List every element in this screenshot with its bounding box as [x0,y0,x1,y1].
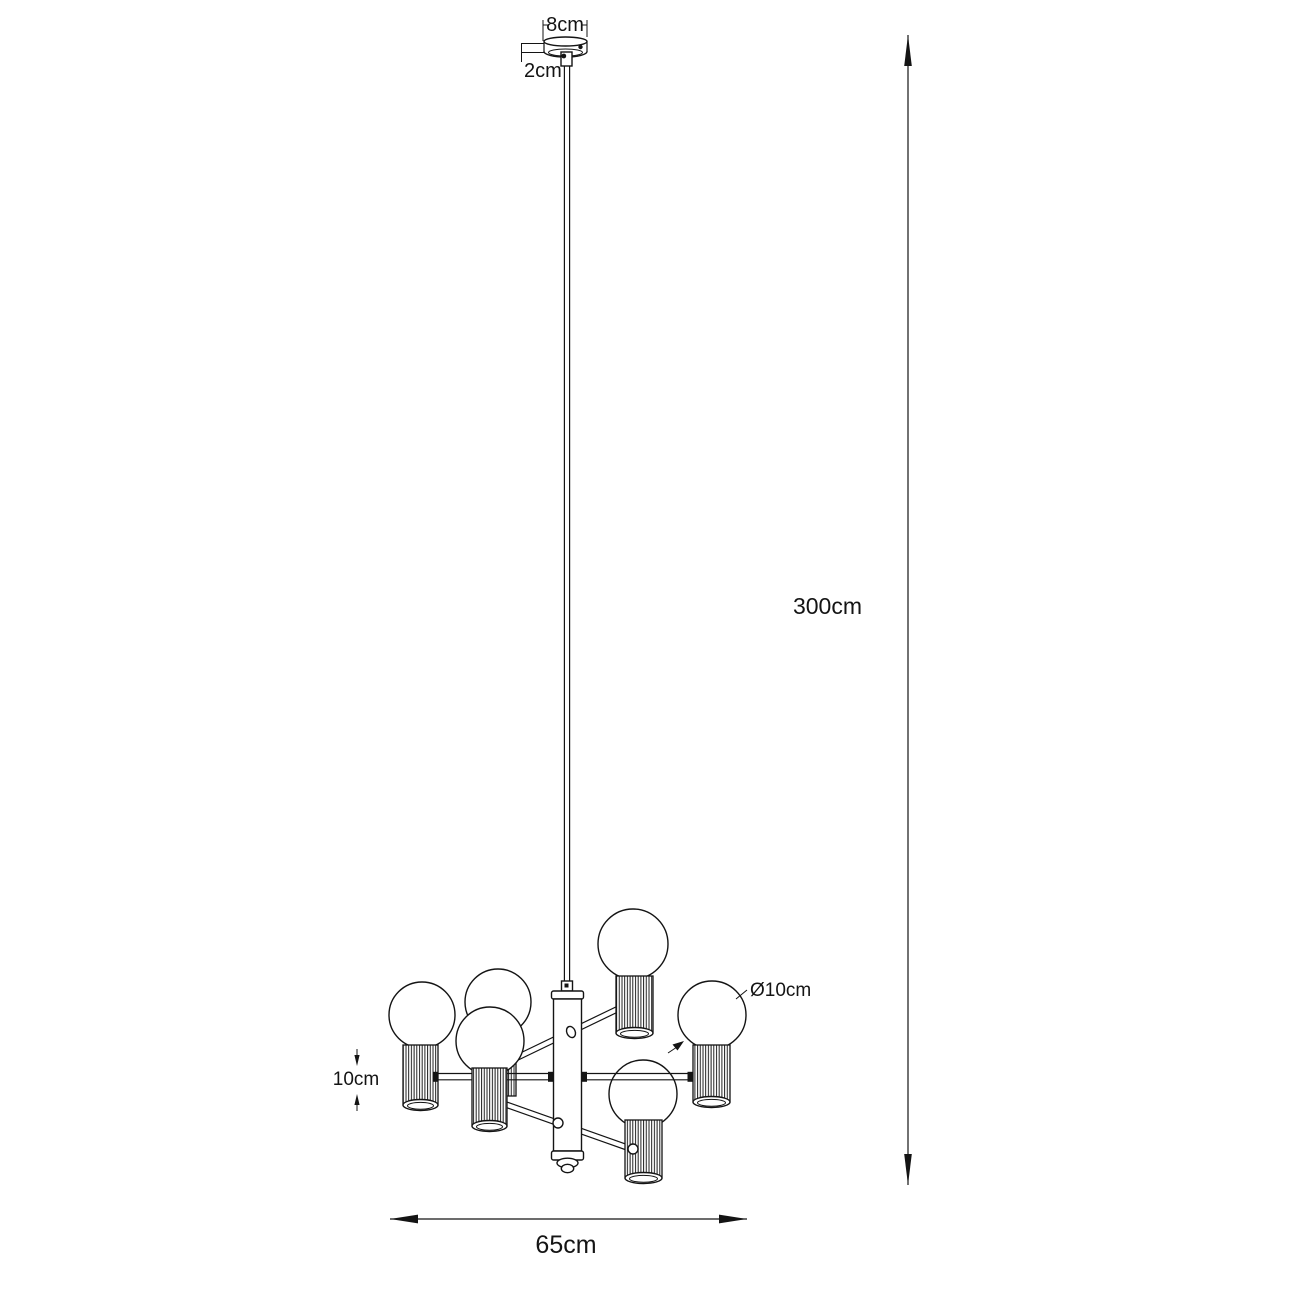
canopy-height-label: 2cm [524,60,562,82]
suspension-height-label: 300cm [793,593,862,619]
bulb-diameter-label: Ø10cm [750,980,811,1001]
arm-end-cap [628,1144,638,1154]
dim-shade-height: 10cm [333,1049,379,1111]
shade-body [693,1045,730,1102]
shade-body [472,1068,507,1126]
body-top-cap [552,991,584,999]
arrow-up-icon [904,35,912,66]
canopy-screw-icon [578,45,582,49]
shade-height-label: 10cm [333,1069,379,1090]
canopy-top [544,37,587,46]
bulb-globe-front-left [456,1007,524,1075]
shade-far-right [688,1045,731,1108]
arrow-right-icon [719,1215,747,1224]
shade-bottom-center [625,1120,662,1184]
arm-socket [688,1072,694,1082]
arrow-down-icon [904,1154,912,1185]
bulb-globe-top-right [598,909,668,979]
bulb-globe-bottom-center [609,1060,677,1128]
arm-socket [548,1072,554,1082]
suspension-rod [564,66,569,982]
lamp-dimension-diagram: 8cm 2cm [0,0,1300,1300]
bulb-globe-far-right [678,981,746,1049]
diagram-canvas: 8cm 2cm [0,0,1300,1300]
arm-socket [433,1072,439,1082]
bulb-globe-far-left [389,982,455,1048]
finial-knob [561,1164,573,1172]
shade-body [616,976,653,1033]
connector-pin [565,984,569,988]
arrow-down-icon [354,1055,359,1066]
shade-body [403,1045,438,1105]
arrow-left-icon [390,1215,418,1224]
fixture-width-label: 65cm [535,1231,596,1259]
grip-screw-icon [561,54,566,59]
lower-arm-joint [553,1118,563,1128]
lamp-body [548,981,587,1173]
shade-top-right [616,976,653,1039]
shade-front-left [472,1068,507,1132]
shade-far-left [403,1045,439,1111]
arm-socket [582,1072,588,1082]
canopy-width-label: 8cm [546,14,584,36]
dim-fixture-width: 65cm [390,1215,747,1259]
dim-suspension-height: 300cm [793,35,912,1185]
